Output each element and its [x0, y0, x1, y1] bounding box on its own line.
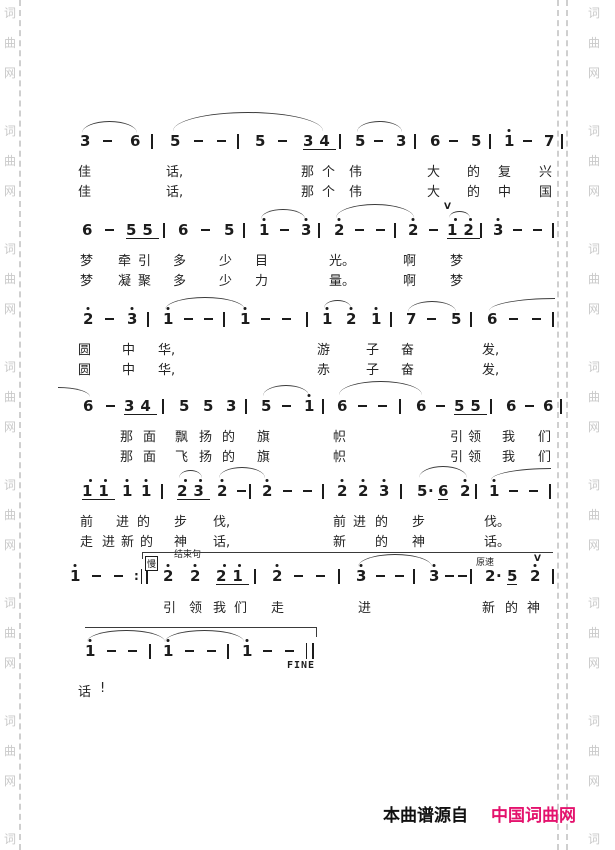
- lyric-syllable: 引: [138, 250, 151, 269]
- duration-dash: -: [185, 650, 194, 652]
- lyric-syllable: 的: [222, 446, 235, 465]
- right-dashed-border-1: [557, 0, 559, 850]
- lyric-syllable: 前: [333, 511, 346, 530]
- lyric-syllable: 扬: [199, 426, 212, 445]
- watermark-char: 网: [588, 418, 600, 435]
- barline: |: [470, 312, 472, 327]
- note-token: 34: [124, 398, 157, 415]
- duration-dash: -: [194, 140, 203, 142]
- note-token: 5: [417, 483, 427, 499]
- note-token: 1: [489, 483, 499, 499]
- note-token: 1: [322, 311, 332, 327]
- lyric-syllable: 新: [333, 531, 346, 550]
- barline: |: [141, 569, 148, 584]
- lyric-syllable: 们: [538, 426, 551, 445]
- lyric-syllable: 伐。: [484, 511, 510, 530]
- barline: |: [549, 484, 551, 499]
- note-token: 5: [179, 398, 189, 414]
- note-token: 1: [163, 643, 173, 659]
- bracket-line: [316, 627, 317, 637]
- barline: |: [552, 569, 554, 584]
- watermark-char: 网: [588, 182, 600, 199]
- slur-tie: [449, 211, 470, 218]
- lyric-syllable: 啊: [403, 250, 416, 269]
- lyric-syllable: 复: [498, 161, 511, 180]
- watermark-char: 词: [4, 4, 16, 21]
- note-token: 23: [177, 483, 210, 500]
- watermark-char: 曲: [4, 624, 16, 641]
- watermark-char: 词: [4, 830, 16, 847]
- watermark-char: 网: [4, 772, 16, 789]
- lyric-syllable: 子: [366, 359, 379, 378]
- barline: |: [560, 399, 562, 414]
- watermark-char: 网: [4, 418, 16, 435]
- lyric-syllable: 梦: [80, 250, 93, 269]
- barline: |: [223, 312, 225, 327]
- note-token: 2: [262, 483, 272, 499]
- lyric-syllable: 少: [219, 270, 232, 289]
- lyric-syllable: 帜: [333, 426, 346, 445]
- note-token: 5: [451, 311, 461, 327]
- left-dashed-border: [19, 0, 21, 850]
- slur-tie: [87, 630, 165, 642]
- note-token: 2: [530, 568, 540, 584]
- lyric-syllable: 们: [538, 446, 551, 465]
- note-token: 2: [485, 568, 495, 584]
- lyric-syllable: 旗: [257, 426, 270, 445]
- lyric-syllable: 子: [366, 339, 379, 358]
- duration-dash: -: [106, 405, 115, 407]
- note-token: 5: [170, 133, 180, 149]
- note-token: 2: [217, 483, 227, 499]
- note-token: 3: [396, 133, 406, 149]
- watermark-char: 网: [4, 300, 16, 317]
- lyric-syllable: 引: [163, 597, 176, 616]
- lyric-syllable: 的: [505, 597, 518, 616]
- note-token: 2: [334, 222, 344, 238]
- note-token: 2: [358, 483, 368, 499]
- lyric-syllable: 的: [222, 426, 235, 445]
- lyric-syllable: 帜: [333, 446, 346, 465]
- duration-dash: -: [107, 650, 116, 652]
- watermark-char: 曲: [588, 742, 600, 759]
- barline: |: [245, 399, 247, 414]
- lyric-syllable: 面: [143, 446, 156, 465]
- duration-dash: -: [280, 229, 289, 231]
- slur-tie: [263, 385, 309, 396]
- lyric-syllable: 伐,: [213, 511, 230, 530]
- slur-tie: [358, 554, 432, 567]
- duration-dash: -: [105, 229, 114, 231]
- lyric-syllable: 中: [122, 359, 135, 378]
- lyric-syllable: 我: [502, 446, 515, 465]
- note-token: 6: [543, 398, 553, 414]
- lyric-syllable: 佳: [78, 181, 91, 200]
- duration-dash: -: [445, 575, 454, 577]
- barline: |: [227, 644, 229, 659]
- note-token: 1: [371, 311, 381, 327]
- lyric-syllable: 的: [467, 161, 480, 180]
- watermark-char: 词: [4, 476, 16, 493]
- barline: |: [163, 223, 165, 238]
- duration-dash: -: [449, 140, 458, 142]
- lyric-syllable: 多: [173, 250, 186, 269]
- lyric-syllable: 光。: [329, 250, 355, 269]
- slur-tie: [324, 300, 351, 308]
- note-token: 1: [504, 133, 514, 149]
- duration-dash: -: [285, 650, 294, 652]
- lyric-syllable: 聚: [138, 270, 151, 289]
- sheet-music-page: 3-6|5--|5-34|5-3|6-5|1-7|佳话,那个伟大的复兴佳话,那个…: [0, 0, 615, 850]
- duration-dash: -: [263, 650, 272, 652]
- duration-dash: -: [201, 229, 210, 231]
- lyric-syllable: 话,: [166, 181, 183, 200]
- lyric-syllable: !: [100, 681, 105, 696]
- lyric-syllable: 的: [375, 511, 388, 530]
- barline: |: [470, 569, 472, 584]
- note-token: 1: [141, 483, 151, 499]
- note-token: 6: [337, 398, 347, 414]
- lyric-syllable: 们: [234, 597, 247, 616]
- duration-dash: -: [217, 140, 226, 142]
- barline: |: [475, 484, 477, 499]
- note-token: 6: [83, 398, 93, 414]
- note-token: 2: [83, 311, 93, 327]
- barline: |: [162, 399, 164, 414]
- barline: |: [237, 134, 239, 149]
- lyric-syllable: 引: [450, 446, 463, 465]
- duration-dash: -: [529, 490, 538, 492]
- lyric-syllable: 面: [143, 426, 156, 445]
- lyric-syllable: 凝: [118, 270, 131, 289]
- watermark-char: 曲: [4, 152, 16, 169]
- duration-dash: -: [509, 490, 518, 492]
- lyric-syllable: 进: [102, 531, 115, 550]
- lyric-syllable: 走: [271, 597, 284, 616]
- watermark-char: 词: [4, 240, 16, 257]
- duration-dash: -: [204, 318, 213, 320]
- watermark-char: 曲: [588, 270, 600, 287]
- note-token: 1: [259, 222, 269, 238]
- note-token: 3: [80, 133, 90, 149]
- barline: |: [480, 223, 482, 238]
- note-token: 1: [163, 311, 173, 327]
- duration-dash: -: [525, 405, 534, 407]
- lyric-syllable: 量。: [329, 270, 355, 289]
- lyric-syllable: 目: [255, 250, 268, 269]
- duration-dash: -: [103, 140, 112, 142]
- slur-tie: [489, 298, 555, 311]
- barline: |: [489, 134, 491, 149]
- slur-tie: [339, 381, 422, 395]
- barline: |: [414, 134, 416, 149]
- right-dashed-border-2: [566, 0, 568, 850]
- slur-tie: [357, 121, 402, 132]
- lyric-syllable: 领: [468, 426, 481, 445]
- lyric-syllable: 我: [502, 426, 515, 445]
- slur-tie: [173, 112, 323, 131]
- watermark-char: 词: [4, 594, 16, 611]
- duration-dash: -: [316, 575, 325, 577]
- note-token: 2: [163, 568, 173, 584]
- fine-mark: FINE: [287, 660, 315, 671]
- note-token: 1: [122, 483, 132, 499]
- barline: |: [338, 569, 340, 584]
- lyric-syllable: 的: [137, 511, 150, 530]
- note-token: 2: [460, 483, 470, 499]
- note-token: 6: [438, 483, 448, 500]
- note-token: 2: [190, 568, 200, 584]
- lyric-syllable: 走: [80, 531, 93, 550]
- slur-tie: [419, 466, 467, 478]
- lyric-syllable: 伟: [349, 161, 362, 180]
- lyric-syllable: 大: [427, 161, 440, 180]
- watermark-char: 词: [588, 240, 600, 257]
- lyric-syllable: 的: [467, 181, 480, 200]
- duration-dash: -: [105, 318, 114, 320]
- note-token: 6: [82, 222, 92, 238]
- note-token: 6: [130, 133, 140, 149]
- duration-dash: -: [92, 575, 101, 577]
- lyric-syllable: 话: [78, 681, 91, 700]
- slur-tie: [336, 204, 414, 218]
- note-token: 12: [447, 222, 480, 239]
- footer-source-label: 本曲谱源自: [383, 801, 468, 826]
- tempo-mark: 慢: [145, 556, 158, 571]
- barline: |: [552, 312, 554, 327]
- watermark-char: 网: [4, 182, 16, 199]
- lyric-syllable: 国: [539, 181, 552, 200]
- note-token: 6: [178, 222, 188, 238]
- note-token: 34: [303, 133, 336, 150]
- lyric-syllable: 神: [412, 531, 425, 550]
- note-token: 11: [82, 483, 115, 500]
- watermark-char: 曲: [4, 506, 16, 523]
- slur-tie: [408, 301, 456, 312]
- lyric-syllable: 我: [213, 597, 226, 616]
- note-token: 3: [226, 398, 236, 414]
- lyric-syllable: 领: [468, 446, 481, 465]
- duration-dash: -: [128, 650, 137, 652]
- watermark-char: 词: [588, 712, 600, 729]
- lyric-syllable: 佳: [78, 161, 91, 180]
- duration-dash: -: [376, 229, 385, 231]
- duration-dash: -: [376, 575, 385, 577]
- duration-dash: -: [283, 490, 292, 492]
- duration-dash: -: [532, 318, 541, 320]
- lyric-syllable: 华,: [158, 359, 175, 378]
- note-token: 1: [242, 643, 252, 659]
- slur-tie: [165, 297, 245, 310]
- barline: |: [322, 399, 324, 414]
- duration-dash: -: [237, 490, 246, 492]
- duration-dash: -: [114, 575, 123, 577]
- lyric-syllable: 力: [255, 270, 268, 289]
- lyric-syllable: 圆: [78, 339, 91, 358]
- lyric-syllable: 圆: [78, 359, 91, 378]
- lyric-syllable: 发,: [482, 339, 499, 358]
- barline: |: [147, 312, 149, 327]
- note-token: 5: [507, 568, 517, 585]
- watermark-char: 网: [588, 300, 600, 317]
- duration-dash: -: [513, 229, 522, 231]
- tempo-mark: 原速: [474, 555, 496, 568]
- lyric-syllable: 的: [375, 531, 388, 550]
- watermark-char: 网: [588, 536, 600, 553]
- duration-dash: -: [282, 318, 291, 320]
- duration-dash: -: [207, 650, 216, 652]
- duration-dash: -: [303, 490, 312, 492]
- duration-dash: -: [374, 140, 383, 142]
- lyric-syllable: 中: [498, 181, 511, 200]
- watermark-char: 网: [588, 654, 600, 671]
- barline: |: [339, 134, 341, 149]
- lyric-syllable: 飞: [175, 446, 188, 465]
- note-token: 7: [544, 133, 554, 149]
- slur-tie: [165, 630, 244, 642]
- lyric-syllable: 个: [322, 161, 335, 180]
- barline: |: [322, 484, 324, 499]
- note-token: 2: [272, 568, 282, 584]
- lyric-syllable: 游: [317, 339, 330, 358]
- watermark-char: 词: [588, 358, 600, 375]
- duration-dash: -: [429, 229, 438, 231]
- watermark-char: 曲: [4, 388, 16, 405]
- lyric-syllable: 扬: [199, 446, 212, 465]
- barline: |: [151, 134, 153, 149]
- note-token: 3: [301, 222, 311, 238]
- duration-dash: -: [458, 575, 467, 577]
- watermark-char: 曲: [588, 388, 600, 405]
- barline: |: [306, 312, 308, 327]
- lyric-syllable: 话。: [484, 531, 510, 550]
- note-token: 3: [493, 222, 503, 238]
- lyric-syllable: 奋: [401, 359, 414, 378]
- duration-dash: -: [427, 318, 436, 320]
- duration-dash: -: [395, 575, 404, 577]
- augmentation-dot: ·: [496, 568, 502, 584]
- watermark-char: 网: [588, 772, 600, 789]
- lyric-syllable: 新: [121, 531, 134, 550]
- barline: ‖: [306, 643, 314, 659]
- note-token: 6: [416, 398, 426, 414]
- barline: |: [249, 484, 251, 499]
- slur-tie: [491, 468, 551, 480]
- barline: |: [318, 223, 320, 238]
- lyric-syllable: 赤: [317, 359, 330, 378]
- barline: |: [400, 484, 402, 499]
- lyric-syllable: 飘: [175, 426, 188, 445]
- lyric-syllable: 话,: [166, 161, 183, 180]
- note-token: 3: [379, 483, 389, 499]
- lyric-syllable: 前: [80, 511, 93, 530]
- duration-dash: -: [436, 405, 445, 407]
- augmentation-dot: ·: [428, 483, 434, 499]
- lyric-syllable: 少: [219, 250, 232, 269]
- lyric-syllable: 步: [174, 511, 187, 530]
- lyric-syllable: 个: [322, 181, 335, 200]
- watermark-char: 曲: [4, 742, 16, 759]
- watermark-char: 曲: [588, 624, 600, 641]
- note-token: 5: [261, 398, 271, 414]
- note-token: 5: [224, 222, 234, 238]
- bracket-line: [142, 552, 553, 553]
- note-token: 2: [337, 483, 347, 499]
- bracket-line: [85, 627, 317, 628]
- barline: |: [149, 644, 151, 659]
- duration-dash: -: [294, 575, 303, 577]
- slur-tie: [219, 467, 265, 478]
- watermark-char: 曲: [588, 506, 600, 523]
- duration-dash: -: [184, 318, 193, 320]
- note-token: 3: [127, 311, 137, 327]
- lyric-syllable: 那: [120, 426, 133, 445]
- note-token: 6: [487, 311, 497, 327]
- watermark-char: 曲: [4, 34, 16, 51]
- note-token: 5: [203, 398, 213, 414]
- lyric-syllable: 领: [189, 597, 202, 616]
- barline: |: [390, 312, 392, 327]
- note-token: 5: [355, 133, 365, 149]
- lyric-syllable: 梦: [450, 250, 463, 269]
- note-token: 1: [70, 568, 80, 584]
- lyric-syllable: 进: [358, 597, 371, 616]
- lyric-syllable: 奋: [401, 339, 414, 358]
- duration-dash: -: [533, 229, 542, 231]
- watermark-char: 网: [588, 64, 600, 81]
- lyric-syllable: 那: [301, 161, 314, 180]
- lyric-syllable: 进: [353, 511, 366, 530]
- watermark-char: 词: [4, 122, 16, 139]
- duration-dash: -: [358, 405, 367, 407]
- duration-dash: -: [523, 140, 532, 142]
- note-token: 55: [454, 398, 487, 415]
- note-token: 6: [506, 398, 516, 414]
- barline: |: [394, 223, 396, 238]
- breath-mark-icon: V: [534, 554, 541, 564]
- lyric-syllable: 话,: [213, 531, 230, 550]
- note-token: 3: [429, 568, 439, 584]
- watermark-char: 词: [4, 712, 16, 729]
- watermark-char: 词: [588, 830, 600, 847]
- duration-dash: -: [282, 405, 291, 407]
- watermark-char: 曲: [588, 34, 600, 51]
- note-token: 1: [304, 398, 314, 414]
- lyric-syllable: 伟: [349, 181, 362, 200]
- watermark-char: 曲: [4, 270, 16, 287]
- lyric-syllable: 进: [116, 511, 129, 530]
- note-token: 6: [430, 133, 440, 149]
- lyric-syllable: 多: [173, 270, 186, 289]
- footer-site-link[interactable]: 中国词曲网: [491, 801, 576, 826]
- lyric-syllable: 发,: [482, 359, 499, 378]
- lyric-syllable: 旗: [257, 446, 270, 465]
- note-token: 3: [356, 568, 366, 584]
- slur-tie: [179, 470, 202, 478]
- slur-tie: [261, 209, 305, 219]
- watermark-char: 网: [4, 654, 16, 671]
- duration-dash: -: [261, 318, 270, 320]
- lyric-syllable: 梦: [450, 270, 463, 289]
- watermark-char: 词: [4, 358, 16, 375]
- watermark-char: 曲: [588, 152, 600, 169]
- breath-mark-icon: V: [444, 202, 451, 212]
- barline: |: [254, 569, 256, 584]
- duration-dash: -: [355, 229, 364, 231]
- watermark-char: 词: [588, 122, 600, 139]
- lyric-syllable: 的: [140, 531, 153, 550]
- note-token: 5: [255, 133, 265, 149]
